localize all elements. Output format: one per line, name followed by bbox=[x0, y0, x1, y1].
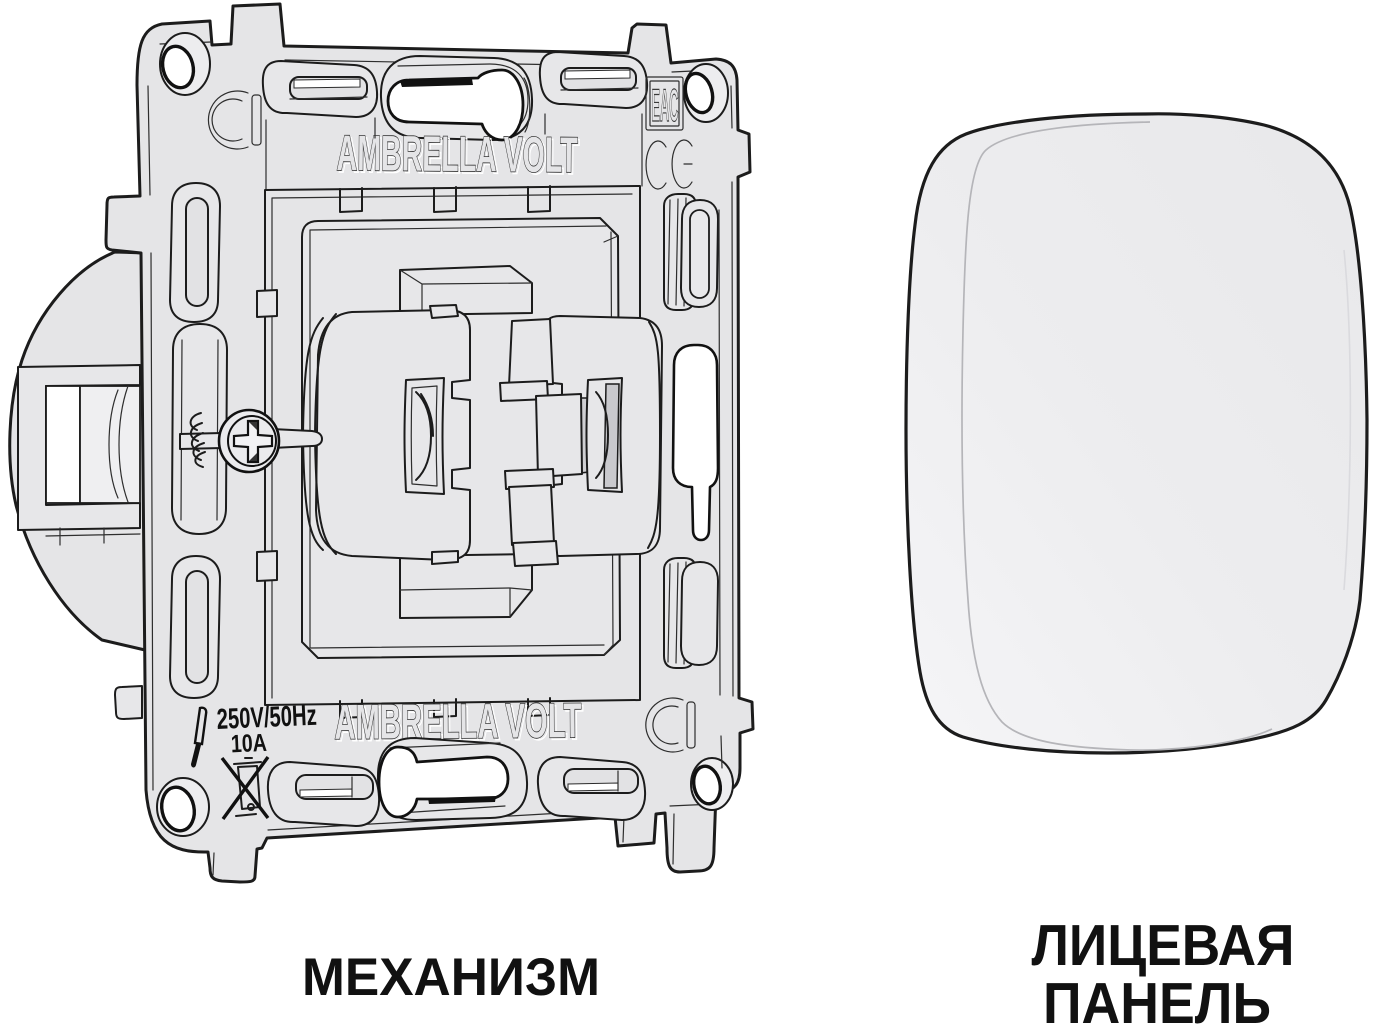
svg-text:ЛИЦЕВАЯ: ЛИЦЕВАЯ bbox=[1032, 913, 1295, 978]
svg-text:ПАНЕЛЬ: ПАНЕЛЬ bbox=[1043, 971, 1271, 1024]
svg-text:EAC: EAC bbox=[652, 79, 679, 131]
svg-text:AMBRELLA VOLT: AMBRELLA VOLT bbox=[336, 125, 577, 183]
svg-text:10A: 10A bbox=[230, 729, 267, 759]
svg-text:МЕХАНИЗМ: МЕХАНИЗМ bbox=[302, 948, 600, 1007]
